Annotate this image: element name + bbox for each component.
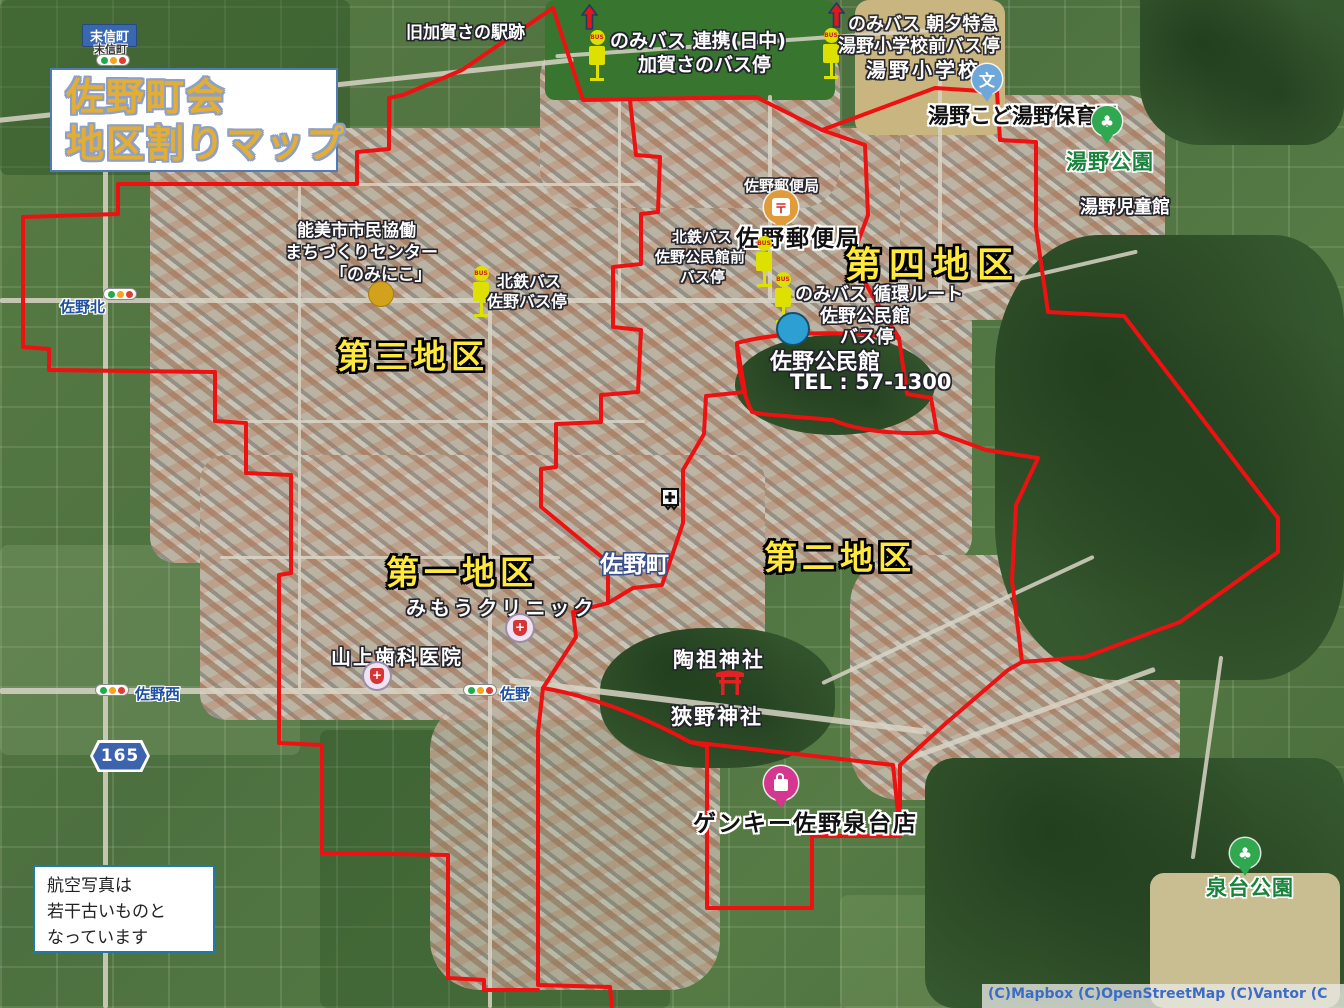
note-line1: 航空写真は — [47, 873, 201, 899]
note-line3: なっています — [47, 925, 201, 951]
bus-icon: BUS — [776, 272, 791, 287]
route-number: 165 — [93, 743, 147, 770]
traffic-light-icon — [103, 288, 137, 300]
route-shield: 165 — [90, 740, 150, 772]
bus-body — [756, 252, 772, 271]
map-title-line2: 地区割りマップ — [66, 121, 322, 168]
bus-pole — [830, 63, 833, 76]
cursor-icon — [659, 486, 681, 512]
bus-icon: BUS — [757, 236, 772, 251]
bus-stop-koominkanmae-label2: 佐野公民館前 — [655, 246, 745, 267]
arrow-up-icon — [828, 2, 845, 28]
sanomachi-label: 佐野町 — [600, 545, 669, 579]
bus-icon: BUS — [474, 266, 489, 281]
izumidai-park-label: 泉台公園 — [1206, 872, 1294, 902]
tree-glyph: ♣ — [1238, 844, 1252, 863]
sano-jinja-label: 狹野神社 — [671, 701, 763, 731]
kyukaga-station-label: 旧加賀さの駅跡 — [406, 18, 525, 43]
map-attribution: (C)Mapbox (C)OpenStreetMap (C)Vantor (C — [982, 984, 1344, 1008]
yuno-park-label: 湯野公園 — [1066, 146, 1154, 176]
bus-pole — [763, 271, 766, 284]
bus-base — [590, 78, 604, 81]
bus-body — [775, 288, 791, 307]
sanokita-label: 佐野北 — [60, 296, 105, 317]
bus-base — [757, 284, 771, 287]
bus-base — [474, 314, 488, 317]
bus-stop-kagasano-label2: 加賀さのバス停 — [638, 50, 771, 77]
bus-stop-koominkanmae-label1: 北鉄バス — [672, 226, 732, 247]
yuno-kodomoen-label: 湯野こど湯野保育園 — [928, 100, 1117, 130]
yuno-jidokan-label: 湯野児童館 — [1080, 193, 1170, 219]
store-icon — [764, 766, 798, 800]
park-icon: ♣ — [1092, 106, 1122, 136]
yamagami-dental-label: 山上歯科医院 — [331, 641, 463, 670]
boundary-divider-north — [541, 100, 660, 603]
school-icon: 文 — [972, 64, 1002, 94]
aerial-district-map: 末信町 末信町 佐野町会 地区割りマップ 旧加賀さの駅跡 BUS のみバス 連携… — [0, 0, 1344, 1008]
bus-pole — [596, 65, 599, 78]
map-title-line1: 佐野町会 — [66, 74, 322, 121]
nomi-center-marker — [368, 281, 394, 307]
clinic-icon: + — [505, 613, 535, 643]
bus-icon: BUS — [590, 30, 605, 45]
marker-tip — [1101, 135, 1113, 144]
traffic-light-icon — [95, 684, 129, 696]
boundary-divider-east — [543, 345, 900, 836]
tree-glyph: ♣ — [1100, 112, 1114, 131]
traffic-light-icon — [463, 684, 497, 696]
traffic-light-icon — [96, 54, 130, 66]
school-glyph: 文 — [979, 67, 995, 91]
yuno-elementary-label: 湯野小学校 — [866, 54, 981, 83]
district1-label: 第一地区 — [386, 546, 538, 594]
note-line2: 若干古いものと — [47, 899, 201, 925]
koominkan-tel-label: TEL : 57-1300 — [790, 370, 951, 394]
bus-stop-koominkanmae-label3: バス停 — [680, 266, 725, 287]
clinic-icon: + — [362, 661, 392, 691]
district3-label: 第三地区 — [337, 330, 489, 378]
bus-icon: BUS — [824, 28, 839, 43]
sanonishi-label: 佐野西 — [135, 683, 180, 704]
bus-body — [589, 46, 605, 65]
bus-body — [823, 44, 839, 63]
cross-glyph: + — [370, 668, 384, 684]
boundary-genky-block — [690, 662, 1022, 908]
bus-stop-kagasano-label1: のみバス 連携(日中) — [610, 26, 786, 53]
torii-icon — [714, 668, 746, 696]
shopping-bag-glyph — [774, 779, 788, 791]
arrow-up-icon — [581, 4, 598, 30]
bus-stop-icon-kagasano: BUS — [586, 30, 608, 81]
genky-store-label: ゲンキー佐野泉台店 — [693, 804, 918, 838]
cross-glyph: + — [513, 620, 527, 636]
post-glyph: 〒 — [772, 198, 790, 216]
district2-label: 第二地区 — [764, 531, 916, 579]
park-icon: ♣ — [1230, 838, 1260, 868]
boundary-south — [538, 688, 612, 1008]
bus-stop-sano-label2: 佐野バス停 — [487, 288, 567, 312]
mimou-clinic-label: みもうクリニック — [406, 592, 597, 621]
map-title: 佐野町会 地区割りマップ — [50, 68, 338, 172]
note-box: 航空写真は 若干古いものと なっています — [33, 865, 215, 953]
koominkan-marker — [776, 312, 810, 346]
sano-signal-label: 佐野 — [500, 683, 530, 704]
bus-pole — [480, 301, 483, 314]
bus-base — [824, 76, 838, 79]
